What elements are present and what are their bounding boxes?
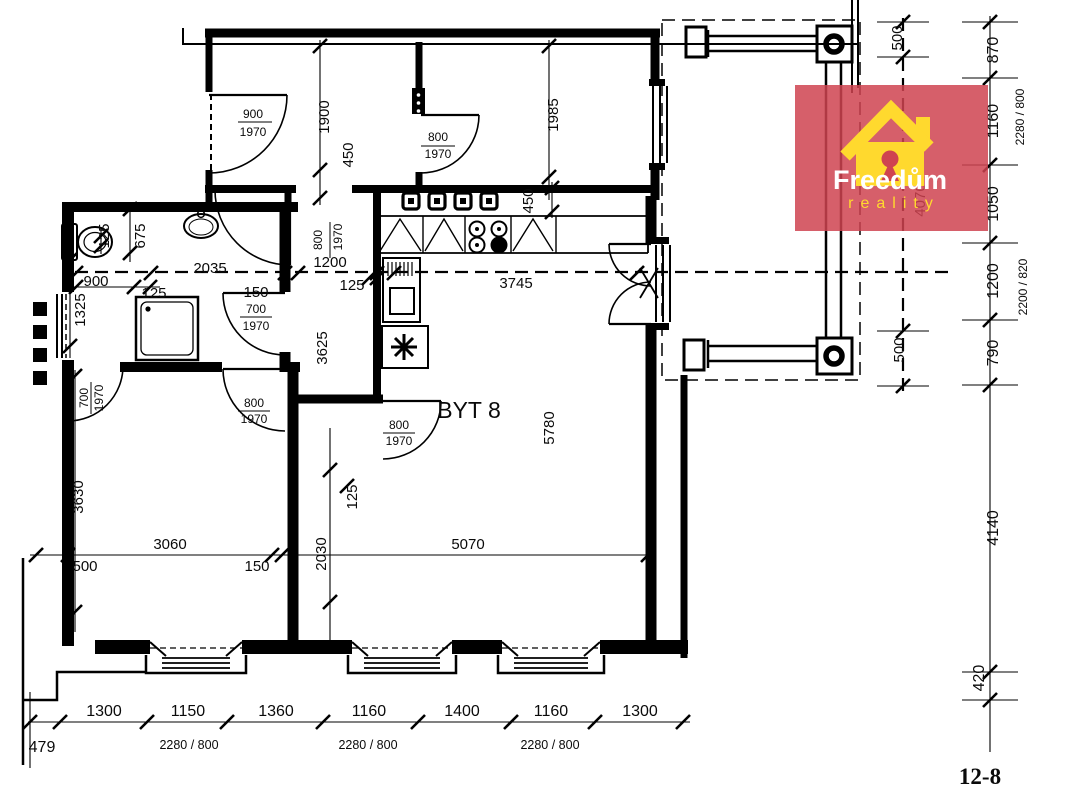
railing-anchor-top	[686, 27, 706, 57]
window-bottom-2	[348, 642, 456, 673]
floor-plan-drawing: 900 1970 800 1970 800 1970 700 1970 800 …	[0, 0, 1072, 808]
dim-partition-wall: 125	[344, 484, 361, 509]
door-living-width: 800	[389, 418, 409, 432]
right-chain-seg: 420	[971, 665, 988, 692]
door-corridor-width: 800	[311, 230, 325, 250]
stove	[470, 222, 508, 254]
right-chain-seg: 790	[985, 340, 1002, 367]
door-bathroom-height: 1970	[243, 319, 270, 333]
door-hall-width: 800	[428, 130, 448, 144]
wall-cabinets	[403, 193, 497, 209]
bottom-chain-offset: 479	[29, 739, 56, 756]
dim-living-depth: 5780	[541, 411, 558, 444]
bottom-chain-seg: 1400	[444, 703, 480, 720]
window-note: 2280 / 800	[520, 738, 579, 752]
window-note: 2280 / 800	[159, 738, 218, 752]
door-living-height: 1970	[386, 434, 413, 448]
dim-corridor-wall: 125	[339, 277, 364, 294]
dim-kitchen-span: 3745	[499, 275, 532, 292]
dim-wc-depth: 675	[132, 223, 149, 248]
door-entry-width: 900	[243, 107, 263, 121]
bottom-chain-seg: 1300	[86, 703, 122, 720]
balcony-chain-seg: 500	[889, 25, 906, 50]
dim-bath-wall: 125	[141, 285, 166, 302]
dim-partition-thickness: 150	[244, 558, 269, 575]
door-bedroom-right-width: 800	[244, 396, 264, 410]
dim-bedroom-width: 3060	[153, 536, 186, 553]
right-chain-seg: 4140	[985, 510, 1002, 546]
room-label: BYT 8	[437, 397, 501, 423]
bottom-chain-seg: 1150	[171, 703, 206, 720]
dim-wc-width: 125	[96, 223, 113, 248]
door-corridor	[215, 190, 290, 265]
logo-brand: Freedům	[833, 165, 947, 195]
fridge	[383, 258, 420, 322]
dim-left-window: 900	[83, 273, 108, 290]
dim-bath-door-offset: 150	[243, 284, 268, 301]
door-balcony-french	[609, 237, 670, 330]
logo: Freedům reality	[795, 85, 988, 231]
bottom-chain-seg: 1360	[258, 703, 294, 720]
dim-bedroom-offset: 500	[72, 558, 97, 575]
door-hall	[421, 115, 479, 173]
dim-room2-depth: 1985	[545, 98, 562, 131]
door-entry-height: 1970	[240, 125, 267, 139]
dim-bedroom-depth: 3630	[70, 480, 87, 513]
railing-post-bottom	[817, 338, 852, 374]
dim-corridor-width: 1200	[313, 254, 346, 271]
shower	[136, 297, 198, 360]
right-chain-seg: 870	[985, 37, 1002, 64]
balcony-chain-seg: 500	[891, 337, 908, 362]
window-left	[33, 294, 66, 385]
sheet-number: 12-8	[959, 764, 1001, 789]
dim-bath-width: 2035	[193, 260, 226, 277]
window-balcony	[649, 79, 667, 170]
dim-hall-depth: 1900	[316, 100, 333, 133]
dim-counter-depth: 450	[520, 188, 537, 213]
bottom-chain-seg: 1160	[352, 703, 387, 720]
dim-living-width: 5070	[451, 536, 484, 553]
floor-plan-sheet: 900 1970 800 1970 800 1970 700 1970 800 …	[0, 0, 1072, 808]
door-hall-height: 1970	[425, 147, 452, 161]
bottom-chain-seg: 1300	[622, 703, 658, 720]
window-bottom-1	[146, 642, 246, 673]
door-bedroom-left-height: 1970	[92, 384, 106, 411]
railing-anchor-bottom	[684, 340, 704, 370]
kitchen-counter	[378, 216, 648, 253]
door-bedroom-left-width: 700	[77, 388, 91, 408]
dim-hall-niche: 450	[340, 142, 357, 167]
door-bathroom-width: 700	[246, 302, 266, 316]
right-chain-seg: 1200	[985, 263, 1002, 299]
dim-partition-length: 2030	[313, 537, 330, 570]
washing-machine	[382, 326, 428, 368]
dim-left-pier: 1325	[72, 293, 89, 326]
door-bedroom-right-height: 1970	[241, 412, 268, 426]
logo-tagline: reality	[848, 195, 940, 212]
right-chain-window-note: 2280 / 800	[1013, 88, 1027, 145]
dim-corridor-length: 3625	[314, 331, 331, 364]
right-chain-window-note: 2200 / 820	[1016, 258, 1030, 315]
door-corridor-height: 1970	[331, 223, 345, 250]
bottom-chain-seg: 1160	[534, 703, 569, 720]
washbasin	[184, 211, 218, 238]
window-bottom-3	[498, 642, 604, 673]
window-note: 2280 / 800	[338, 738, 397, 752]
